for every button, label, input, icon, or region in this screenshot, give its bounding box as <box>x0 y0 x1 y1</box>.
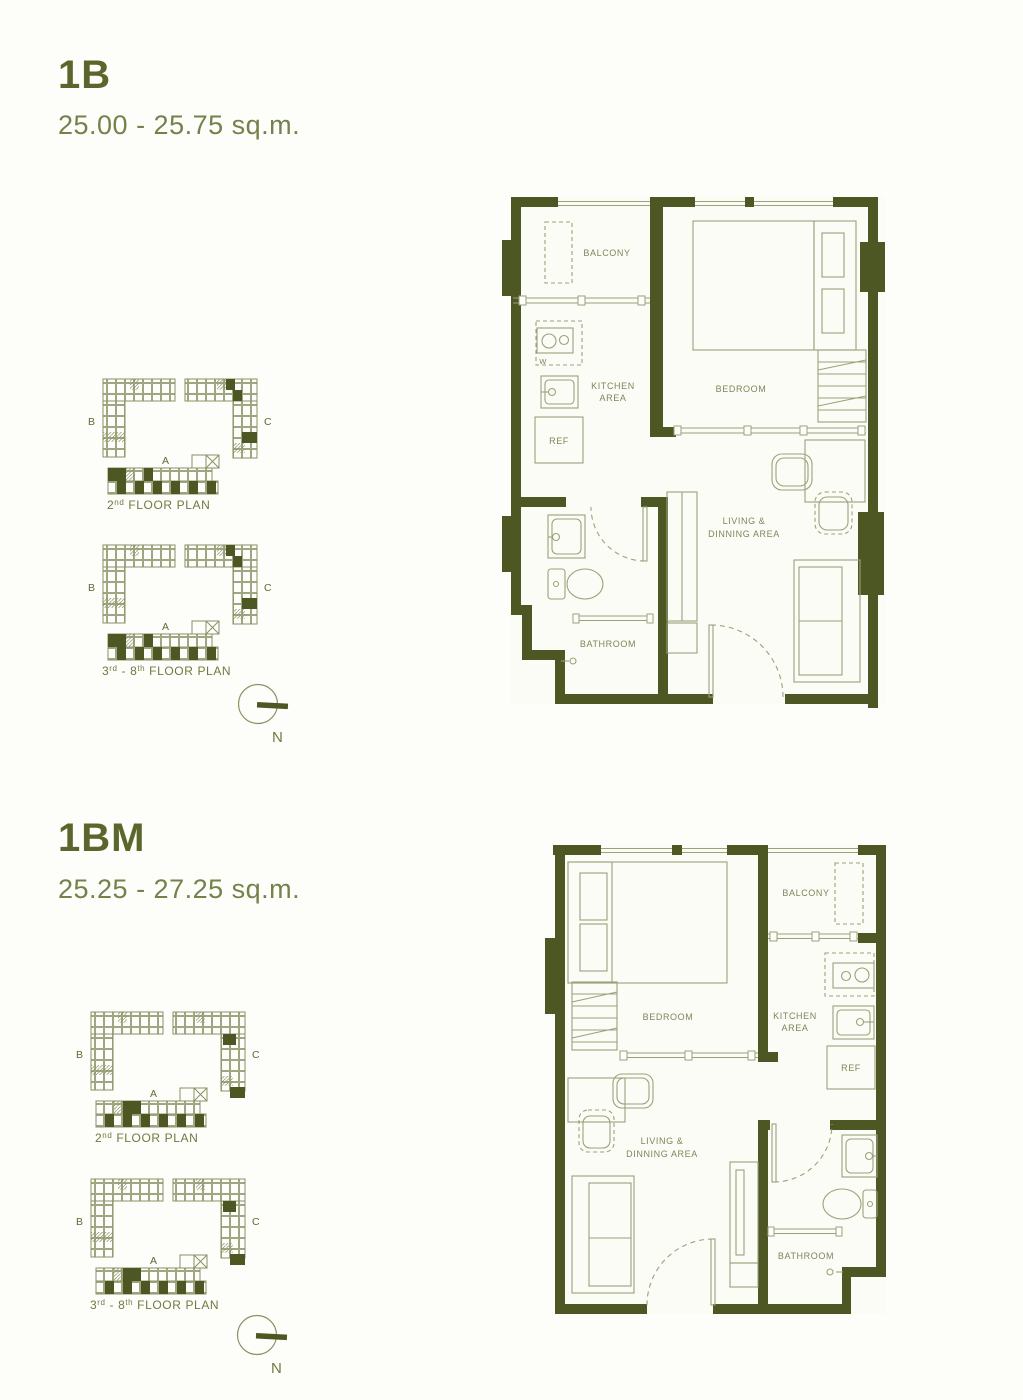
compass-needle-icon <box>257 702 288 709</box>
wing-label-b: B <box>76 1216 83 1228</box>
wing-label-a: A <box>150 1255 157 1267</box>
key-plan-1bm-3rd-8th-floor: B A C 3rd - 8th FLOOR PLAN <box>68 1172 268 1317</box>
floor-plan-caption: 2nd FLOOR PLAN <box>107 498 210 512</box>
kitchen-label-line1: KITCHEN <box>773 1011 817 1021</box>
kitchen-label-line1: KITCHEN <box>591 381 635 391</box>
ref-label: REF <box>841 1063 861 1073</box>
wing-label-b: B <box>88 582 95 594</box>
floor-plan-caption: 3rd - 8th FLOOR PLAN <box>102 664 231 678</box>
ref-label: REF <box>549 436 569 446</box>
compass-1b: N <box>232 678 296 748</box>
unit-title-1bm: 1BM <box>58 818 145 858</box>
wing-label-a: A <box>162 455 169 467</box>
living-label-line2: DINNING AREA <box>708 529 780 539</box>
north-label: N <box>272 729 283 746</box>
wing-label-c: C <box>264 416 272 428</box>
key-plan-1b-2nd-floor: B A C 2nd FLOOR PLAN <box>80 372 280 517</box>
bedroom-label: BEDROOM <box>716 384 767 394</box>
floor-plan-sheet: 1B 25.00 - 25.75 sq.m. B A C 2nd FLOOR P… <box>0 0 1023 1400</box>
wing-label-a: A <box>150 1088 157 1100</box>
unit-floor <box>511 197 885 704</box>
compass-1bm: N <box>231 1309 295 1379</box>
living-label-line1: LIVING & <box>723 516 766 526</box>
living-label-line1: LIVING & <box>641 1136 684 1146</box>
north-label: N <box>271 1360 282 1377</box>
bathroom-label: BATHROOM <box>778 1251 834 1261</box>
unit-plan-1bm: BEDROOM BALCONY REF KITCHEN AREA <box>540 838 895 1323</box>
wing-label-b: B <box>76 1049 83 1061</box>
key-plan-1b-3rd-8th-floor: B A C 3rd - 8th FLOOR PLAN <box>80 538 280 683</box>
bedroom-label: BEDROOM <box>643 1012 694 1022</box>
balcony-label: BALCONY <box>583 248 630 258</box>
unit-area-1bm: 25.25 - 27.25 sq.m. <box>58 876 300 903</box>
compass-needle-icon <box>256 1333 287 1340</box>
wing-label-c: C <box>264 582 272 594</box>
floor-plan-caption: 2nd FLOOR PLAN <box>95 1131 198 1145</box>
floor-plan-caption: 3rd - 8th FLOOR PLAN <box>90 1298 219 1312</box>
unit-area-1b: 25.00 - 25.75 sq.m. <box>58 112 300 139</box>
wing-label-c: C <box>252 1049 260 1061</box>
unit-plan-1b: BALCONY W REF KITCHEN AREA BEDROOM <box>495 190 895 715</box>
unit-floor <box>555 845 886 1314</box>
balcony-label: BALCONY <box>782 888 829 898</box>
wing-label-a: A <box>162 621 169 633</box>
bathroom-label: BATHROOM <box>580 639 636 649</box>
wing-label-b: B <box>88 416 95 428</box>
key-plan-1bm-2nd-floor: B A C 2nd FLOOR PLAN <box>68 1005 268 1150</box>
living-label-line2: DINNING AREA <box>626 1149 698 1159</box>
unit-title-1b: 1B <box>58 55 111 95</box>
wing-label-c: C <box>252 1216 260 1228</box>
washer-label: W <box>539 357 547 366</box>
kitchen-label-line2: AREA <box>782 1023 809 1033</box>
kitchen-label-line2: AREA <box>600 393 627 403</box>
